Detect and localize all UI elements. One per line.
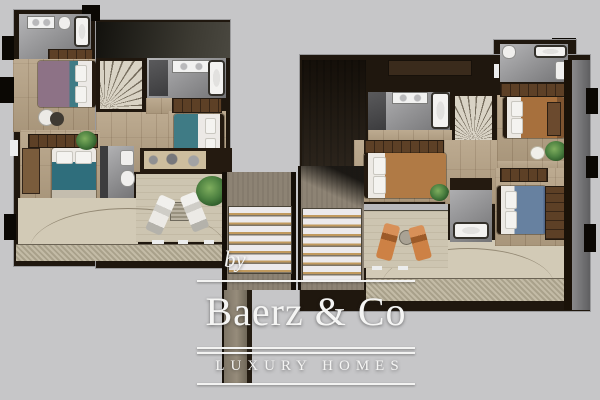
bathtub <box>74 16 90 47</box>
washbasin <box>120 150 134 166</box>
double-bed-lower <box>52 148 96 202</box>
breakfast-tray <box>530 146 545 160</box>
walk-in-shower <box>368 92 386 130</box>
side-table <box>50 112 64 126</box>
shower-wall <box>450 178 492 190</box>
closet-dark-zone <box>388 60 472 76</box>
bathtub <box>534 45 567 58</box>
wall-pier <box>586 88 598 114</box>
potted-plant <box>430 184 449 201</box>
logo-rule-mid-1 <box>197 347 415 349</box>
stair-treads <box>455 96 492 141</box>
logo-brand-name: Baerz & Co <box>197 284 415 340</box>
staircase <box>96 58 146 112</box>
door-opening <box>10 140 18 156</box>
bathtub <box>208 60 225 96</box>
logo-rule-bottom <box>197 383 415 385</box>
terrace-sill <box>364 204 448 211</box>
pillow <box>505 211 517 229</box>
toilet <box>120 170 135 187</box>
wardrobe-strip <box>500 83 566 97</box>
wall-pier <box>584 224 596 252</box>
logo-by: by <box>224 248 246 272</box>
kitchen-counter <box>144 151 206 169</box>
toilet <box>58 16 71 30</box>
wall-pier <box>0 77 14 103</box>
staircase <box>452 93 495 144</box>
roof-band <box>96 22 230 58</box>
double-sink-counter <box>392 92 428 104</box>
toilet <box>502 45 516 59</box>
side-wall-inner <box>564 60 572 310</box>
pillow <box>373 176 386 194</box>
wall-pier <box>2 36 14 60</box>
double-bed-mauve <box>38 61 96 107</box>
wardrobe-strip <box>500 168 548 182</box>
threshold-notch <box>178 240 188 244</box>
bathtub <box>431 92 450 129</box>
wardrobe-strip <box>364 140 444 154</box>
brand-watermark: by Baerz & Co LUXURY HOMES <box>197 246 415 390</box>
bench <box>547 102 561 136</box>
pillow <box>511 118 523 134</box>
logo-rule-mid-2 <box>197 352 415 354</box>
pillow <box>75 65 87 82</box>
double-bed-blue <box>497 186 546 234</box>
pillow <box>505 191 517 209</box>
walk-in-shower <box>149 60 168 96</box>
threshold-notch <box>204 240 214 244</box>
pillow <box>511 101 523 117</box>
potted-plant <box>76 131 97 150</box>
logo-tagline: LUXURY HOMES <box>197 358 419 375</box>
logo-rule-top <box>197 280 415 282</box>
pillow <box>56 151 73 164</box>
threshold-notch <box>152 240 164 244</box>
floorplan-image: by Baerz & Co LUXURY HOMES <box>0 0 600 400</box>
pillow <box>75 86 87 103</box>
wall-pier <box>586 156 598 178</box>
floor-plan-left <box>8 5 234 270</box>
pillow <box>205 118 216 134</box>
desk <box>22 148 40 194</box>
stair-treads <box>100 61 142 109</box>
wardrobe-strip <box>172 98 222 113</box>
pillow <box>373 157 386 175</box>
bathtub <box>453 222 489 239</box>
pillow <box>75 151 92 164</box>
double-sink-counter <box>172 60 210 73</box>
wall-pier <box>4 214 16 240</box>
shower-wall <box>100 146 108 200</box>
vanity-sink <box>27 16 55 29</box>
door-opening <box>494 64 499 78</box>
